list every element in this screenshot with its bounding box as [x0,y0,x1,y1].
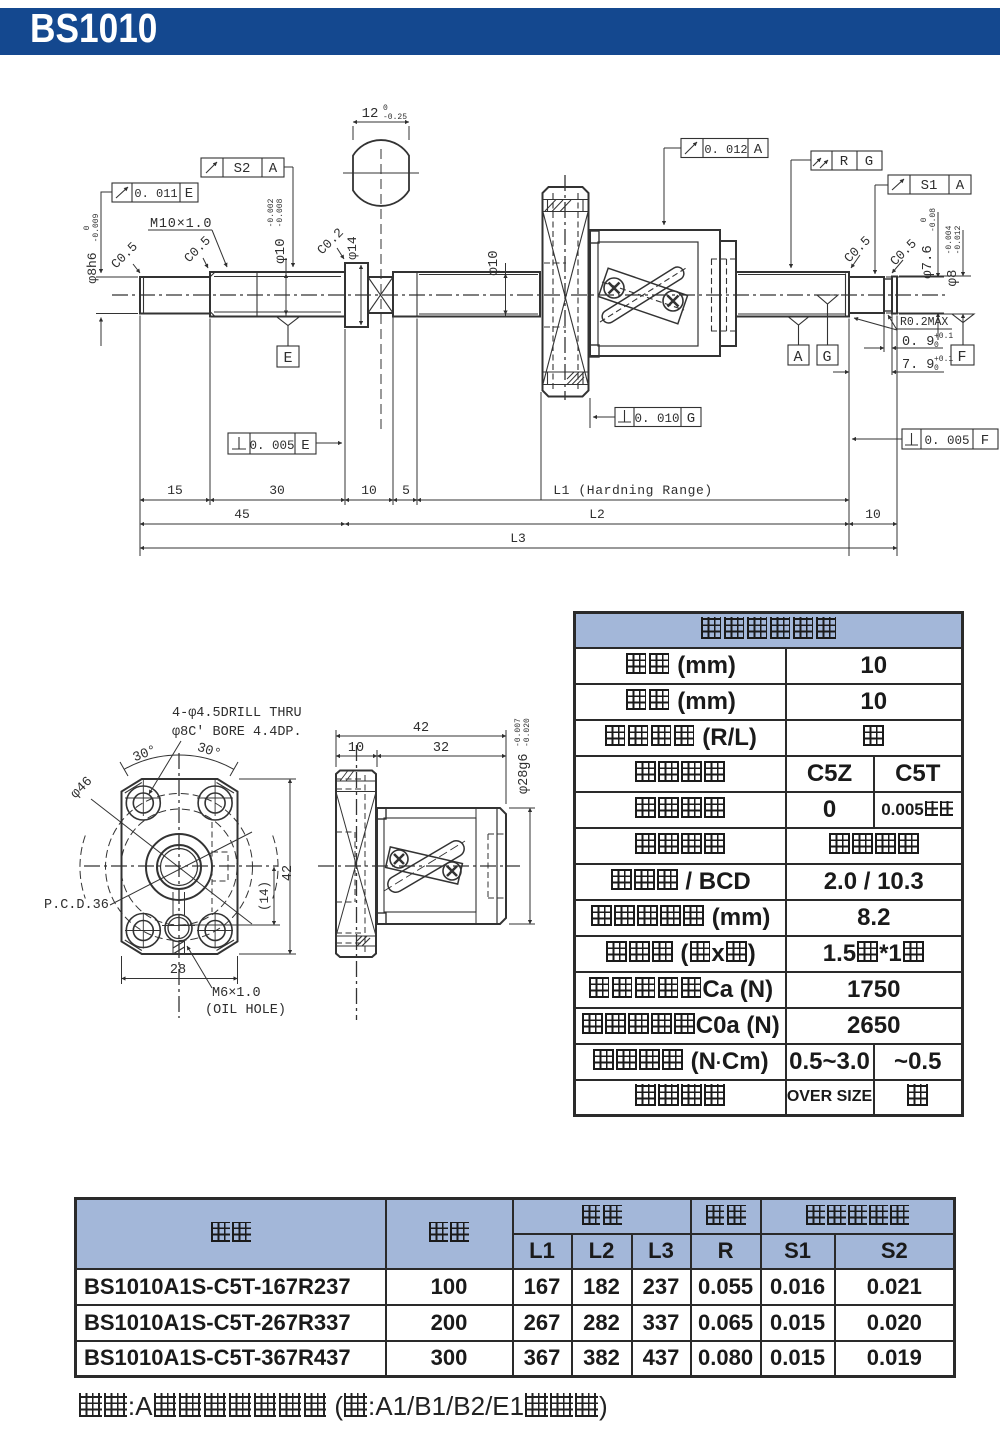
svg-text:10: 10 [865,507,881,522]
svg-text:+0.1: +0.1 [934,355,953,364]
svg-text:G: G [687,411,695,427]
svg-text:30: 30 [269,483,285,498]
svg-text:-0.08: -0.08 [929,208,938,232]
svg-text:0. 005: 0. 005 [924,434,969,448]
svg-text:P.C.D.36: P.C.D.36 [44,898,109,913]
svg-text:7. 9: 7. 9 [902,358,934,373]
svg-text:0: 0 [920,217,929,222]
svg-text:C0.2: C0.2 [314,225,347,258]
svg-text:φ8C' BORE 4.4DP.: φ8C' BORE 4.4DP. [172,725,302,740]
svg-text:E: E [185,186,193,202]
svg-text:φ8h6: φ8h6 [85,252,100,283]
svg-text:-0.008: -0.008 [276,198,285,227]
svg-text:28: 28 [170,963,186,978]
svg-text:0: 0 [383,104,388,113]
svg-text:φ46: φ46 [68,774,96,802]
svg-text:G: G [822,349,831,366]
svg-text:A: A [956,178,965,194]
svg-text:42: 42 [281,865,296,881]
svg-text:-0.002: -0.002 [267,198,276,227]
svg-text:30°: 30° [195,741,223,763]
svg-text:A: A [793,349,802,366]
svg-text:-0.004: -0.004 [945,225,954,254]
svg-text:E: E [301,438,309,454]
svg-text:A: A [269,161,278,177]
svg-text:φ10: φ10 [273,238,289,263]
svg-text:32: 32 [433,741,449,756]
svg-text:-0.020: -0.020 [523,718,532,747]
svg-text:0: 0 [83,225,92,230]
svg-text:-0.009: -0.009 [92,213,101,242]
svg-text:C0.5: C0.5 [108,239,141,272]
svg-text:S1: S1 [921,178,938,194]
svg-text:E: E [283,350,292,367]
svg-text:φ10: φ10 [486,250,502,275]
svg-text:S2: S2 [234,161,251,177]
svg-text:-0.012: -0.012 [954,225,963,254]
svg-text:G: G [865,154,873,170]
svg-text:(14): (14) [258,881,272,911]
svg-text:φ14: φ14 [345,236,360,260]
svg-text:M10×1.0: M10×1.0 [150,217,212,232]
svg-text:L1 (Hardning Range): L1 (Hardning Range) [553,483,713,498]
svg-text:5: 5 [402,483,410,498]
svg-text:L2: L2 [589,507,605,522]
svg-text:R: R [840,154,849,170]
svg-text:C0.5: C0.5 [887,236,920,269]
svg-text:10: 10 [361,483,377,498]
svg-text:(OIL HOLE): (OIL HOLE) [205,1003,286,1018]
svg-text:10: 10 [348,741,364,756]
svg-text:A: A [754,142,763,158]
svg-text:+0.1: +0.1 [934,332,953,341]
svg-text:0. 005: 0. 005 [249,439,294,453]
svg-text:φ8: φ8 [945,270,961,287]
svg-text:30°: 30° [131,743,159,766]
svg-text:-0.007: -0.007 [514,718,523,747]
svg-text:0. 010: 0. 010 [634,412,679,426]
svg-text:45: 45 [234,507,250,522]
svg-text:C0.5: C0.5 [181,233,214,266]
svg-text:M6×1.0: M6×1.0 [212,986,261,1001]
svg-text:φ28g6: φ28g6 [517,753,532,794]
svg-text:-0.25: -0.25 [383,113,407,122]
svg-text:F: F [981,433,989,449]
svg-text:0. 9: 0. 9 [902,335,934,350]
svg-text:0: 0 [934,364,939,373]
svg-text:42: 42 [413,721,429,736]
svg-text:φ7.6: φ7.6 [920,245,936,279]
svg-text:0. 011: 0. 011 [134,187,177,201]
svg-text:F: F [957,349,966,366]
svg-text:L3: L3 [510,531,526,546]
svg-text:0. 012: 0. 012 [704,143,747,157]
svg-text:15: 15 [167,483,183,498]
svg-text:C0.5: C0.5 [841,233,874,266]
svg-text:12: 12 [362,106,379,122]
svg-text:0: 0 [934,341,939,350]
svg-text:4-φ4.5DRILL THRU: 4-φ4.5DRILL THRU [172,706,302,721]
svg-text:R0.2MAX: R0.2MAX [900,316,948,329]
